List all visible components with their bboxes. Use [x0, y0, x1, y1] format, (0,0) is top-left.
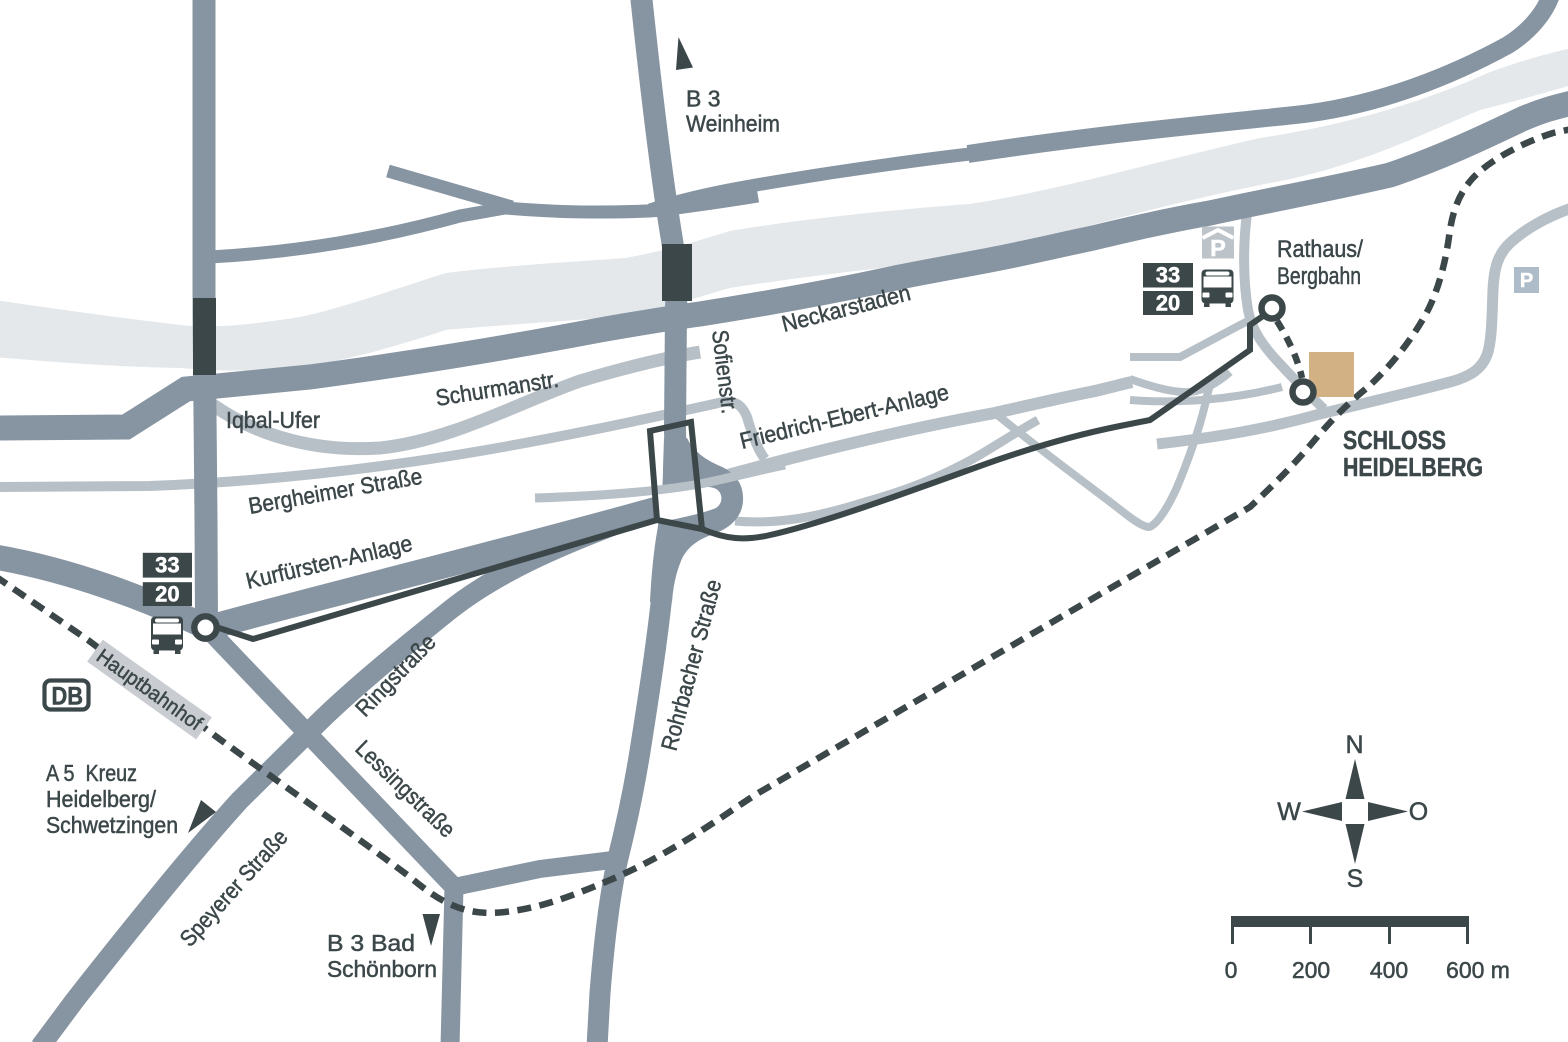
- svg-text:400: 400: [1370, 957, 1408, 983]
- svg-text:33: 33: [1156, 263, 1180, 288]
- svg-text:Rathaus/: Rathaus/: [1277, 236, 1363, 263]
- svg-text:P: P: [1520, 270, 1533, 292]
- svg-text:B 3 Bad: B 3 Bad: [327, 930, 415, 956]
- svg-text:O: O: [1409, 798, 1428, 826]
- svg-text:Schönborn: Schönborn: [327, 956, 437, 982]
- svg-text:0: 0: [1225, 957, 1238, 983]
- svg-text:HEIDELBERG: HEIDELBERG: [1343, 452, 1483, 482]
- svg-text:P: P: [1210, 235, 1226, 261]
- svg-text:Bergbahn: Bergbahn: [1277, 263, 1361, 290]
- svg-text:200: 200: [1292, 957, 1330, 983]
- svg-text:20: 20: [155, 582, 179, 607]
- svg-text:B 3: B 3: [686, 86, 721, 112]
- svg-text:33: 33: [155, 553, 179, 578]
- svg-text:Heidelberg/: Heidelberg/: [46, 786, 157, 812]
- svg-text:SCHLOSS: SCHLOSS: [1343, 425, 1446, 455]
- svg-text:N: N: [1345, 731, 1363, 759]
- svg-text:A 5 Kreuz: A 5 Kreuz: [46, 760, 137, 786]
- svg-text:Weinheim: Weinheim: [686, 111, 780, 137]
- svg-text:W: W: [1277, 798, 1301, 826]
- svg-text:S: S: [1347, 865, 1364, 893]
- svg-text:600 m: 600 m: [1446, 957, 1510, 983]
- svg-text:Schwetzingen: Schwetzingen: [46, 812, 178, 838]
- svg-text:20: 20: [1156, 291, 1180, 316]
- svg-text:Iqbal-Ufer: Iqbal-Ufer: [226, 407, 320, 433]
- svg-text:DB: DB: [52, 683, 84, 711]
